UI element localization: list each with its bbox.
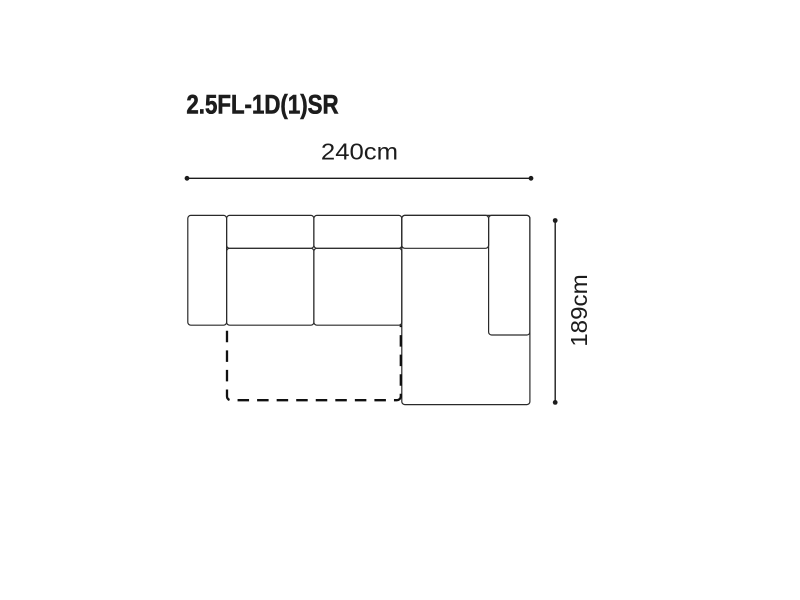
svg-text:240cm: 240cm bbox=[321, 139, 398, 165]
svg-text:2.5FL-1D(1)SR: 2.5FL-1D(1)SR bbox=[186, 90, 338, 120]
svg-text:189cm: 189cm bbox=[566, 274, 592, 347]
